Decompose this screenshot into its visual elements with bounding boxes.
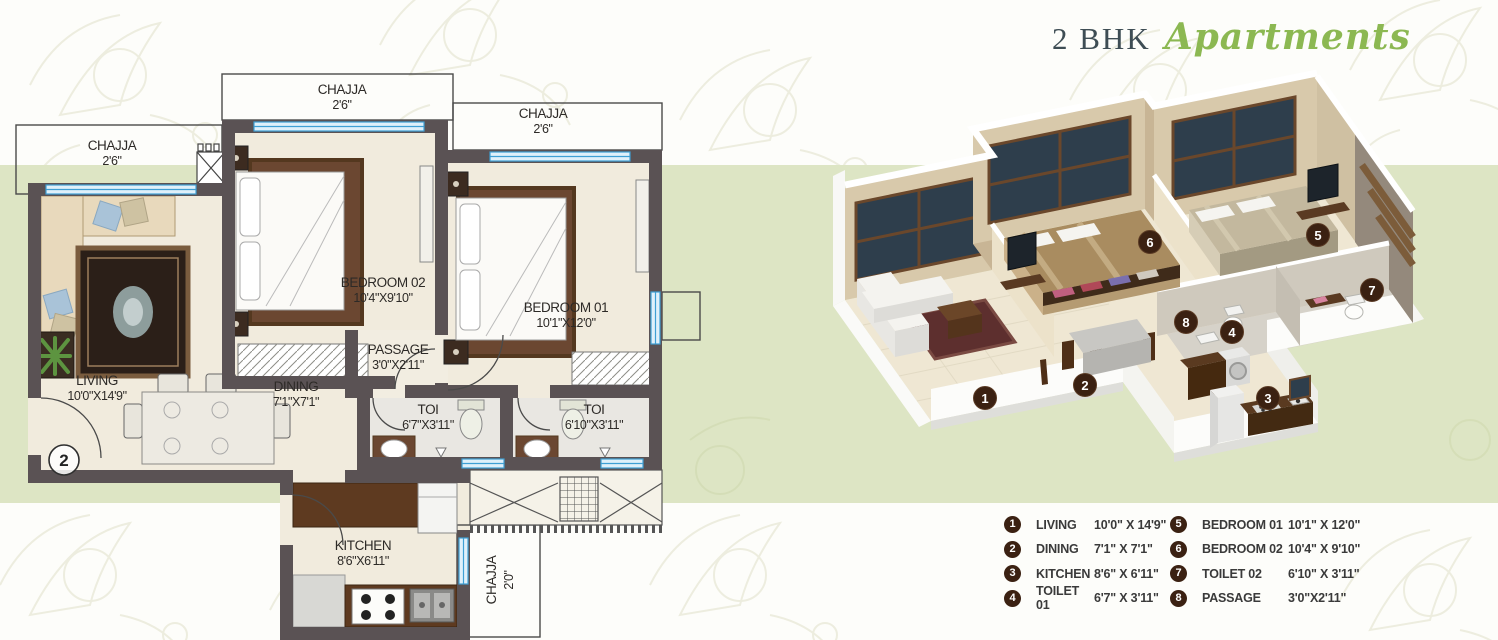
legend-item-toilet01: 4 TOILET 01 6'7" X 3'11" xyxy=(1004,590,1166,607)
label-kitchen: KITCHEN xyxy=(335,538,391,553)
legend-dim-toilet02: 6'10" X 3'11" xyxy=(1288,567,1360,581)
floor-plan-2d: 2 CHAJJA 2'6" CHAJJA 2'6" CHAJJA 2'6" BE… xyxy=(0,60,760,640)
living-carpet xyxy=(78,248,188,376)
marker-7: 7 xyxy=(1368,283,1375,298)
legend-item-toilet02: 7 TOILET 02 6'10" X 3'11" xyxy=(1170,565,1360,582)
label-living: LIVING xyxy=(76,373,118,388)
title-script: Apartments xyxy=(1165,16,1411,58)
page: 2 BHK Apartments xyxy=(0,0,1498,640)
label-bedroom02: BEDROOM 02 xyxy=(341,275,426,290)
label-toilet1: TOI xyxy=(417,402,438,417)
legend-num-2: 2 xyxy=(1004,541,1021,558)
marker-4: 4 xyxy=(1228,325,1236,340)
unit-number-badge: 2 xyxy=(49,445,79,475)
legend-label-dining: DINING xyxy=(1036,542,1094,556)
legend-num-5: 5 xyxy=(1170,516,1187,533)
label-chajja-left: CHAJJA xyxy=(88,138,137,153)
legend-item-kitchen: 3 KITCHEN 8'6" X 6'11" xyxy=(1004,565,1166,582)
legend-item-passage: 8 PASSAGE 3'0"X2'11" xyxy=(1170,590,1360,607)
legend-dim-dining: 7'1" X 7'1" xyxy=(1094,542,1153,556)
label-toilet2: TOI xyxy=(583,402,604,417)
balcony-strip xyxy=(470,470,662,529)
page-title: 2 BHK Apartments xyxy=(1052,16,1411,58)
dim-living: 10'0"X14'9" xyxy=(67,389,126,403)
legend-label-kitchen: KITCHEN xyxy=(1036,567,1094,581)
marker-8: 8 xyxy=(1182,315,1189,330)
legend-item-dining: 2 DINING 7'1" X 7'1" xyxy=(1004,541,1166,558)
dim-passage: 3'0"X2'11" xyxy=(372,358,424,372)
label-chajja-right: CHAJJA xyxy=(519,106,568,121)
legend-dim-passage: 3'0"X2'11" xyxy=(1288,591,1346,605)
legend-column-2: 5 BEDROOM 01 10'1" X 12'0" 6 BEDROOM 02 … xyxy=(1170,516,1360,614)
legend-item-bedroom02: 6 BEDROOM 02 10'4" X 9'10" xyxy=(1170,541,1360,558)
legend-num-3: 3 xyxy=(1004,565,1021,582)
legend-dim-living: 10'0" X 14'9" xyxy=(1094,518,1166,532)
unit-number: 2 xyxy=(59,451,68,470)
legend-dim-bedroom01: 10'1" X 12'0" xyxy=(1288,518,1360,532)
marker-1: 1 xyxy=(981,391,988,406)
legend-label-passage: PASSAGE xyxy=(1202,591,1288,605)
legend-label-bedroom01: BEDROOM 01 xyxy=(1202,518,1288,532)
marker-5: 5 xyxy=(1314,228,1321,243)
title-prefix: 2 BHK xyxy=(1052,21,1151,57)
legend-dim-kitchen: 8'6" X 6'11" xyxy=(1094,567,1159,581)
render-3d: 1 2 3 4 5 6 7 8 xyxy=(820,60,1498,520)
dim-kitchen: 8'6"X6'11" xyxy=(337,554,389,568)
label-chajja-top: CHAJJA xyxy=(318,82,367,97)
marker-6: 6 xyxy=(1146,235,1153,250)
dim-chajja-left: 2'6" xyxy=(102,154,121,168)
legend-num-7: 7 xyxy=(1170,565,1187,582)
legend-dim-toilet01: 6'7" X 3'11" xyxy=(1094,591,1159,605)
legend-item-bedroom01: 5 BEDROOM 01 10'1" X 12'0" xyxy=(1170,516,1360,533)
dim-chajja-top: 2'6" xyxy=(332,98,351,112)
dim-dining: 7'1"X7'1" xyxy=(273,395,319,409)
legend-num-6: 6 xyxy=(1170,541,1187,558)
legend-item-living: 1 LIVING 10'0" X 14'9" xyxy=(1004,516,1166,533)
dim-toilet1: 6'7"X3'11" xyxy=(402,418,454,432)
plant xyxy=(36,332,74,378)
label-chajja-bottom: CHAJJA xyxy=(484,555,499,604)
dim-bedroom02: 10'4"X9'10" xyxy=(353,291,412,305)
legend-label-toilet02: TOILET 02 xyxy=(1202,567,1288,581)
legend-label-bedroom02: BEDROOM 02 xyxy=(1202,542,1288,556)
dim-toilet2: 6'10"X3'11" xyxy=(565,418,623,432)
marker-2: 2 xyxy=(1081,378,1088,393)
duct-box xyxy=(197,144,225,184)
legend-label-living: LIVING xyxy=(1036,518,1094,532)
dim-chajja-right: 2'6" xyxy=(533,122,552,136)
label-passage: PASSAGE xyxy=(368,342,429,357)
dim-bedroom01: 10'1"X12'0" xyxy=(536,316,595,330)
dim-chajja-bottom: 2'0" xyxy=(502,570,516,589)
legend-num-1: 1 xyxy=(1004,516,1021,533)
legend-dim-bedroom02: 10'4" X 9'10" xyxy=(1288,542,1360,556)
legend-num-8: 8 xyxy=(1170,590,1187,607)
legend-num-4: 4 xyxy=(1004,590,1021,607)
legend-column-1: 1 LIVING 10'0" X 14'9" 2 DINING 7'1" X 7… xyxy=(1004,516,1166,614)
label-bedroom01: BEDROOM 01 xyxy=(524,300,609,315)
legend-label-toilet01: TOILET 01 xyxy=(1036,584,1094,612)
label-dining: DINING xyxy=(274,379,319,394)
marker-3: 3 xyxy=(1264,391,1271,406)
